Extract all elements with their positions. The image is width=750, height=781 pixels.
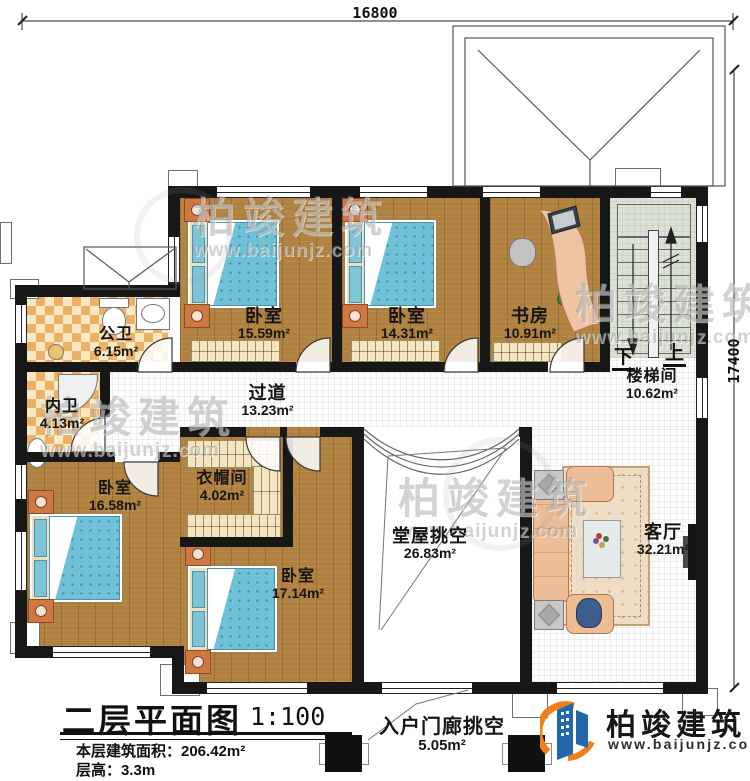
room-label-ensuite-bath: 内卫 4.13m² [12,398,112,432]
room-name: 公卫 [66,326,166,344]
floor-drain [48,344,64,360]
room-label-bedroom-bottom: 卧室 17.14m² [248,568,348,602]
room-area: 26.83m² [375,546,485,562]
room-label-study: 书房 10.91m² [480,306,580,342]
room-label-cloakroom: 衣帽间 4.02m² [172,470,272,504]
wall [332,198,342,362]
window [15,305,27,343]
room-name: 堂屋挑空 [375,526,485,546]
room-name: 衣帽间 [172,470,272,488]
room-name: 卧室 [214,306,314,326]
bed [188,220,279,308]
title-underline [60,732,352,740]
dimension-right: 17400 [725,333,743,389]
window [168,237,180,282]
nightstand [184,304,210,328]
nightstand [342,198,368,222]
room-area: 5.05m² [352,738,532,755]
room-name: 书房 [480,306,580,326]
bed-mattress [364,222,434,306]
wall [172,362,296,372]
room-area: 32.21m² [613,542,713,558]
wall [27,452,115,462]
wall [320,427,364,437]
room-area: 10.91m² [480,326,580,342]
room-label-corridor: 过道 13.23m² [215,383,320,419]
window [217,186,310,198]
plan-scale: 1:100 [250,702,325,731]
wardrobe [350,340,440,362]
room-name: 客厅 [613,522,713,542]
room-name: 楼梯间 [602,368,702,386]
nightstand [28,490,54,514]
wardrobe [190,340,280,362]
window [382,682,472,694]
plant [557,294,568,305]
nightstand [28,599,54,623]
wall [352,437,364,682]
bed-mattress [49,516,120,600]
wall [27,362,138,372]
room-label-bedroom-left: 卧室 16.58m² [65,480,165,514]
wall [158,452,180,462]
room-name: 卧室 [248,568,348,586]
desk-chair [509,238,536,267]
dimension-top: 16800 [345,4,405,22]
wardrobe [492,342,562,362]
room-area: 16.58m² [65,498,165,514]
window [15,465,27,499]
window [53,646,150,658]
end-table [534,600,564,630]
wall [280,427,287,437]
bed [30,514,122,602]
room-label-living-room: 客厅 32.21m² [613,522,713,558]
wall [478,362,548,372]
closet [186,514,281,538]
wall [520,437,532,682]
stair-up-label: 上 [663,344,686,367]
nightstand [185,650,211,674]
room-area: 13.23m² [215,403,320,419]
closet [186,440,281,468]
wall [180,427,246,437]
window [483,186,540,198]
room-name: 过道 [215,383,320,403]
canopy-roof-outline [84,247,176,289]
window [15,532,27,590]
sofa [533,496,569,602]
window [651,186,681,198]
bed-headboard [190,222,207,306]
floor-height-line: 层高：3.3m [76,759,155,780]
pilaster [0,222,12,264]
room-name: 卧室 [357,306,457,326]
room-area: 10.62m² [602,386,702,402]
window [207,682,307,694]
room-name: 内卫 [12,398,112,416]
floor-plan-canvas: 下 上 [0,0,750,781]
room-area: 14.31m² [357,326,457,342]
bed-mattress [207,222,277,306]
wall [15,285,180,297]
wall [330,362,446,372]
armchair [566,466,614,502]
stair-rail [648,230,659,358]
room-name: 卧室 [65,480,165,498]
flowers [596,533,602,539]
window [696,206,708,242]
floor-corridor-stub [100,427,180,452]
bed [345,220,436,308]
nightstand [184,198,210,222]
brand-url: www.baijunjz.com [608,736,750,752]
room-area: 4.13m² [12,416,112,432]
wall [283,437,293,547]
porch-roof-outline [453,26,725,186]
person [576,598,602,628]
room-area: 15.59m² [214,326,314,342]
wall [172,658,184,694]
room-label-stairwell: 楼梯间 10.62m² [602,368,702,402]
room-name: 入户门廊挑空 [352,716,532,738]
room-label-public-bath: 公卫 6.15m² [66,326,166,360]
sink-basin [141,304,165,323]
room-area: 4.02m² [172,488,272,504]
wall [519,427,532,437]
room-label-bedroom-top-left: 卧室 15.59m² [214,306,314,342]
window [360,186,427,198]
room-label-bedroom-top-mid: 卧室 14.31m² [357,306,457,342]
wall [696,198,708,694]
room-area: 6.15m² [66,344,166,360]
bed-headboard [32,516,49,600]
room-label-porch-void: 入户门廊挑空 5.05m² [352,716,532,755]
bed-headboard [347,222,364,306]
wall [600,198,610,372]
wall [180,537,293,547]
brand-logo-icon [540,698,600,762]
end-table [534,470,564,500]
floor-area-line: 本层建筑面积：206.42m² [76,740,245,761]
floor-corridor [100,372,610,427]
room-label-hall-void: 堂屋挑空 26.83m² [375,526,485,562]
room-area: 17.14m² [248,586,348,602]
window [557,682,663,694]
bed-headboard [190,568,207,650]
